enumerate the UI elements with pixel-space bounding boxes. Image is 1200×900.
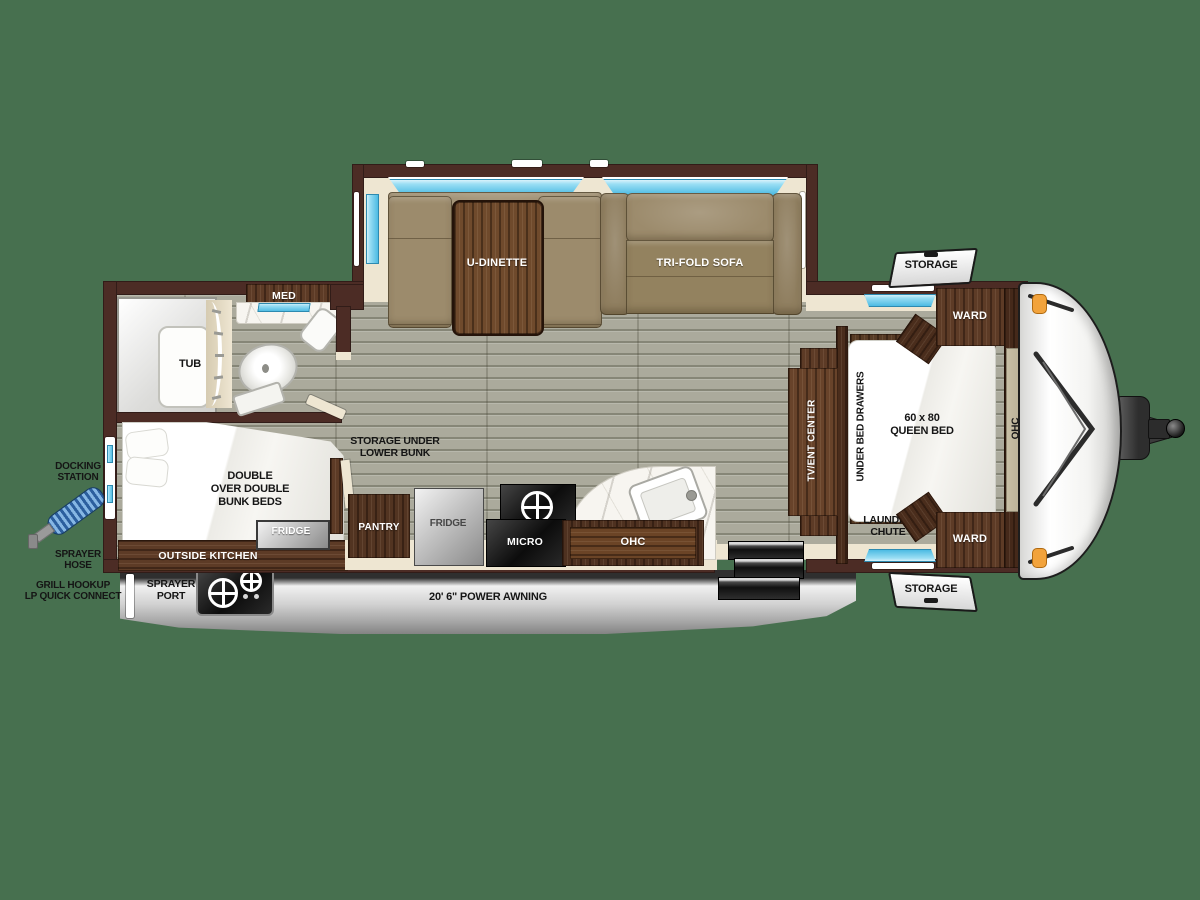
outside-kitchen-label: OUTSIDE KITCHEN <box>128 550 288 562</box>
sofa-back <box>626 193 774 242</box>
toilet-drain <box>262 364 269 373</box>
clearance-light <box>512 160 542 167</box>
slide-side-window-left <box>366 194 379 264</box>
microwave-label: MICRO <box>486 536 564 548</box>
slide-side-window-frame-left <box>354 192 359 266</box>
storage-bottom-label: STORAGE <box>892 583 970 596</box>
sprayer-port-label: SPRAYER PORT <box>138 578 204 602</box>
sprayer-hose-label: SPRAYER HOSE <box>38 549 118 571</box>
storage-under-bunk-label: STORAGE UNDER LOWER BUNK <box>330 435 460 459</box>
bunk-pillow <box>125 456 170 488</box>
u-dinette-label: U-DINETTE <box>432 257 562 270</box>
bunk-pillow <box>124 427 169 461</box>
storage-top-label: STORAGE <box>892 259 970 272</box>
outside-fridge-label: FRIDGE <box>256 526 326 537</box>
pantry-label: PANTRY <box>348 522 410 533</box>
hitch-ball-icon <box>1166 419 1185 438</box>
kitchen-ohc-label: OHC <box>562 536 704 549</box>
entry-step-2 <box>734 558 804 579</box>
bathroom-wall-bottom <box>116 412 342 423</box>
bathroom-wall-endcap <box>336 352 351 360</box>
vanity-window <box>257 303 310 312</box>
sofa-seat <box>626 240 774 314</box>
sprayer-hose-nozzle-tip <box>28 534 38 549</box>
bunk-beds-label: DOUBLE OVER DOUBLE BUNK BEDS <box>180 470 320 509</box>
wardrobe-top-label: WARD <box>930 310 1010 323</box>
sofa-armrest-right <box>772 193 802 315</box>
wall-rear-left <box>103 281 117 573</box>
bedroom-window-bottom <box>864 549 936 562</box>
marker-light-bottom <box>1032 548 1047 568</box>
entry-step-3 <box>718 577 800 600</box>
curtain-ring <box>215 354 224 357</box>
kitchen-faucet-icon <box>686 490 697 501</box>
slide-out-wall-right <box>806 164 818 294</box>
docking-station-port <box>107 485 113 503</box>
griddle-burner-icon-small <box>240 570 262 592</box>
front-cap-graphics <box>1018 282 1118 576</box>
med-cabinet-label: MED <box>252 290 316 302</box>
marker-light-top <box>1032 294 1047 314</box>
wardrobe-bottom-label: WARD <box>930 533 1010 546</box>
grill-hookup-label: GRILL HOOKUP LP QUICK CONNECT <box>14 580 132 602</box>
floorplan-canvas: 20' 6" POWER AWNING SPRAYER PORT U-DINET… <box>0 0 1200 900</box>
griddle-burner-icon-large <box>208 578 238 608</box>
clearance-light <box>406 161 424 167</box>
storage-door-bottom-handle <box>924 598 938 603</box>
bedroom-window-top <box>864 294 936 307</box>
tv-ent-center-label: TV/ENT CENTER <box>807 374 818 508</box>
docking-station-label: DOCKING STATION <box>38 461 118 483</box>
tri-fold-sofa-label: TRI-FOLD SOFA <box>620 257 780 270</box>
queen-bed-label: 60 x 80 QUEEN BED <box>862 412 982 438</box>
bathroom-wall-divider <box>336 306 351 354</box>
griddle-knob <box>243 594 248 599</box>
griddle-knob <box>254 594 259 599</box>
clearance-light <box>590 160 608 167</box>
awning-label: 20' 6" POWER AWNING <box>338 591 638 604</box>
storage-door-top-handle <box>924 252 938 257</box>
kitchen-fridge-label: FRIDGE <box>414 518 482 529</box>
bedroom-window-frame-bottom <box>872 563 934 569</box>
